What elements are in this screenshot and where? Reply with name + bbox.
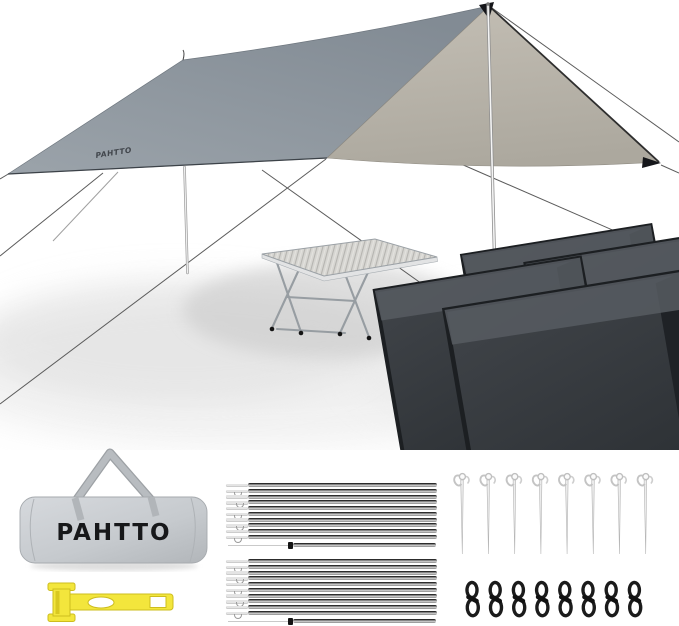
shock-cord-hook	[234, 614, 242, 619]
pole-tube	[248, 489, 437, 493]
pole-tube	[248, 500, 437, 504]
pole-tube	[248, 611, 437, 615]
tent-stake	[480, 474, 495, 554]
stake-ring	[643, 474, 649, 480]
stake-shaft	[592, 480, 595, 554]
pole-tube	[248, 529, 437, 533]
pole-tube	[248, 605, 437, 609]
stake-ring	[538, 474, 544, 480]
pole-connector	[226, 606, 248, 609]
mallet-notch-hole	[150, 597, 166, 608]
stake-ring	[617, 474, 623, 480]
pole-rod	[228, 621, 289, 623]
pole-tube	[248, 576, 437, 580]
pole-tube	[248, 582, 437, 586]
guy-rope-bundle	[467, 583, 478, 616]
pole-segment	[225, 611, 439, 617]
bag-logo: PAHTTO	[56, 520, 171, 546]
guy-line	[0, 173, 103, 256]
pole-tube	[293, 543, 436, 547]
guy-rope-bundle	[606, 583, 617, 616]
pole-connector	[226, 571, 248, 574]
guy-rope-bundle	[629, 583, 640, 616]
pole-segment	[225, 535, 439, 541]
pole-tube	[248, 588, 437, 592]
tent-stake	[454, 474, 469, 554]
stake-ring	[564, 474, 570, 480]
guy-rope-bundle	[513, 583, 524, 616]
stake-ring	[486, 474, 492, 480]
pole-tube	[248, 523, 437, 527]
pole-connector	[226, 583, 248, 586]
guy-rope-bundle	[583, 583, 594, 616]
pole-connector	[226, 507, 248, 510]
mallet-oval-hole	[88, 597, 114, 608]
guy-rope-bundle	[490, 583, 501, 616]
tent-stake	[507, 474, 522, 554]
pole-connector	[226, 495, 248, 498]
stake-shaft	[566, 480, 569, 554]
pole-connector	[226, 594, 248, 597]
stake-shaft	[539, 480, 542, 554]
carry-bag: PAHTTO	[18, 440, 210, 578]
pole-tube	[248, 565, 437, 569]
pole-tube	[248, 506, 437, 510]
stake-shaft	[487, 480, 490, 554]
pole-tube	[248, 483, 437, 487]
pole-end-segment	[225, 619, 439, 625]
pole-rod	[228, 545, 289, 547]
pole-tube	[248, 518, 437, 522]
pole-tube	[248, 559, 437, 563]
pole-connector	[226, 484, 248, 487]
corner-tie-loop	[183, 50, 184, 60]
pole-tube	[248, 599, 437, 603]
guy-rope-bundle	[560, 583, 571, 616]
pole-bundles	[225, 481, 439, 626]
mallet-head-groove	[56, 591, 60, 614]
tarp-canopy: PAHTTO	[8, 2, 661, 174]
pole-end-segment	[225, 543, 439, 549]
stake-mallet	[40, 578, 180, 626]
guy-line	[661, 165, 679, 173]
stake-ring	[590, 474, 596, 480]
tent-stake	[559, 474, 574, 554]
pole-tube	[248, 571, 437, 575]
pole-tube	[248, 594, 437, 598]
tent-stake	[638, 474, 653, 554]
bag-strap	[75, 453, 151, 502]
tent-stakes	[450, 468, 665, 563]
pole-tube	[293, 619, 436, 623]
tarp-pole-left	[185, 167, 188, 273]
tent-stake	[585, 474, 600, 554]
pole-connector	[226, 560, 248, 563]
pole-tube	[248, 535, 437, 539]
pole-connector	[226, 518, 248, 521]
stake-shaft	[461, 480, 464, 554]
tent-stake	[533, 474, 548, 554]
stake-shaft	[644, 480, 647, 554]
guy-rope-bundles	[455, 578, 655, 626]
pole-tip	[486, 2, 490, 6]
guy-line	[53, 172, 118, 241]
pole-connector	[226, 530, 248, 533]
guy-rope-bundle	[537, 583, 548, 616]
tent-stake	[611, 474, 626, 554]
pole-tube	[248, 512, 437, 516]
shock-cord-hook	[234, 538, 242, 543]
stake-shaft	[513, 480, 516, 554]
shelter-scene: PAHTTO	[0, 0, 679, 450]
pole-tube	[248, 495, 437, 499]
stake-ring	[459, 474, 465, 480]
stake-ring	[512, 474, 518, 480]
product-image: PAHTTO	[0, 0, 679, 626]
stake-shaft	[618, 480, 621, 554]
